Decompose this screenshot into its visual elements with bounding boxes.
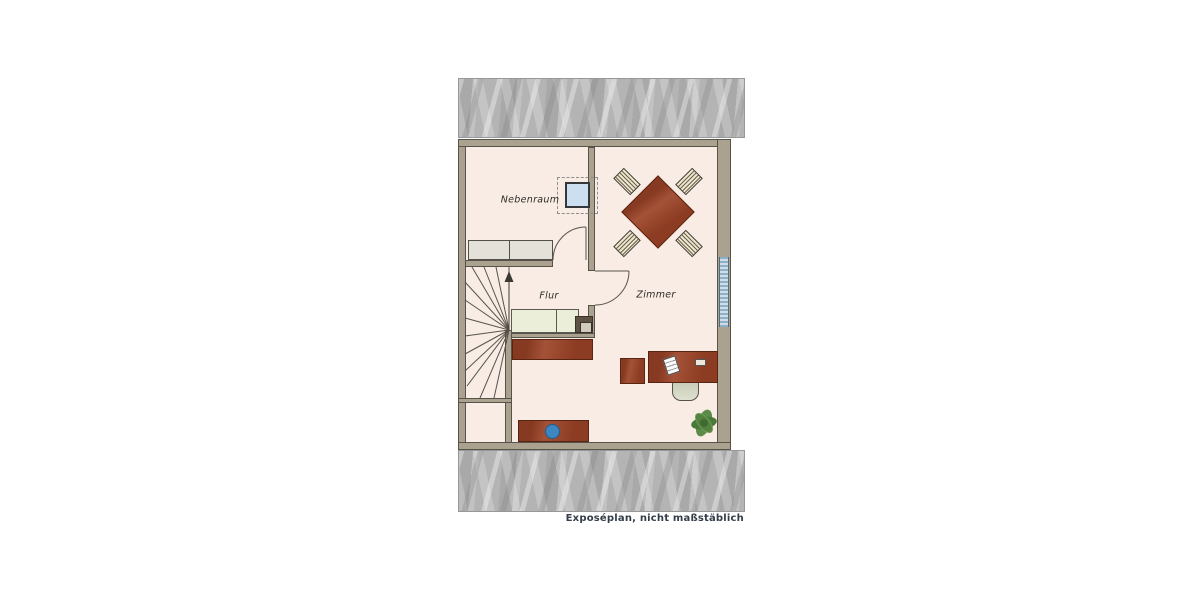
room-label-flur: Flur <box>539 291 558 302</box>
desk-object-icon <box>695 359 706 366</box>
wall-top <box>458 139 731 147</box>
desk-icon <box>648 351 718 383</box>
hall-cabinet-icon <box>511 309 579 333</box>
side-table-icon <box>620 358 645 384</box>
wall-bottom <box>458 442 731 450</box>
facade-window-icon <box>719 257 729 327</box>
floorplan-canvas: Nebenraum Flur Zimmer Exposéplan, nicht … <box>0 0 1200 600</box>
sideboard-basin-icon <box>518 420 589 442</box>
wall-staircase-south <box>458 398 512 403</box>
wall-staircase-right <box>505 330 512 443</box>
hall-cabinet-divider <box>556 310 557 332</box>
wall-nebenraum-south <box>465 260 553 267</box>
wall-flur-south <box>505 333 595 338</box>
plan-caption: Exposéplan, nicht maßstäblich <box>566 513 744 524</box>
built-in-wardrobe-icon <box>468 240 553 260</box>
wall-left <box>458 139 466 450</box>
basin-icon <box>545 424 560 439</box>
desk-chair-icon <box>672 380 699 401</box>
room-label-zimmer: Zimmer <box>636 290 675 301</box>
roof-hatch-top <box>458 78 745 138</box>
room-label-nebenraum: Nebenraum <box>501 195 560 206</box>
hall-dark-cabinet-icon <box>575 316 593 333</box>
roof-hatch-bottom <box>458 450 745 512</box>
wardrobe-divider <box>509 241 510 259</box>
skylight-window-icon <box>565 182 590 208</box>
sideboard-icon <box>512 339 593 360</box>
hall-dark-cabinet-door <box>580 322 592 333</box>
